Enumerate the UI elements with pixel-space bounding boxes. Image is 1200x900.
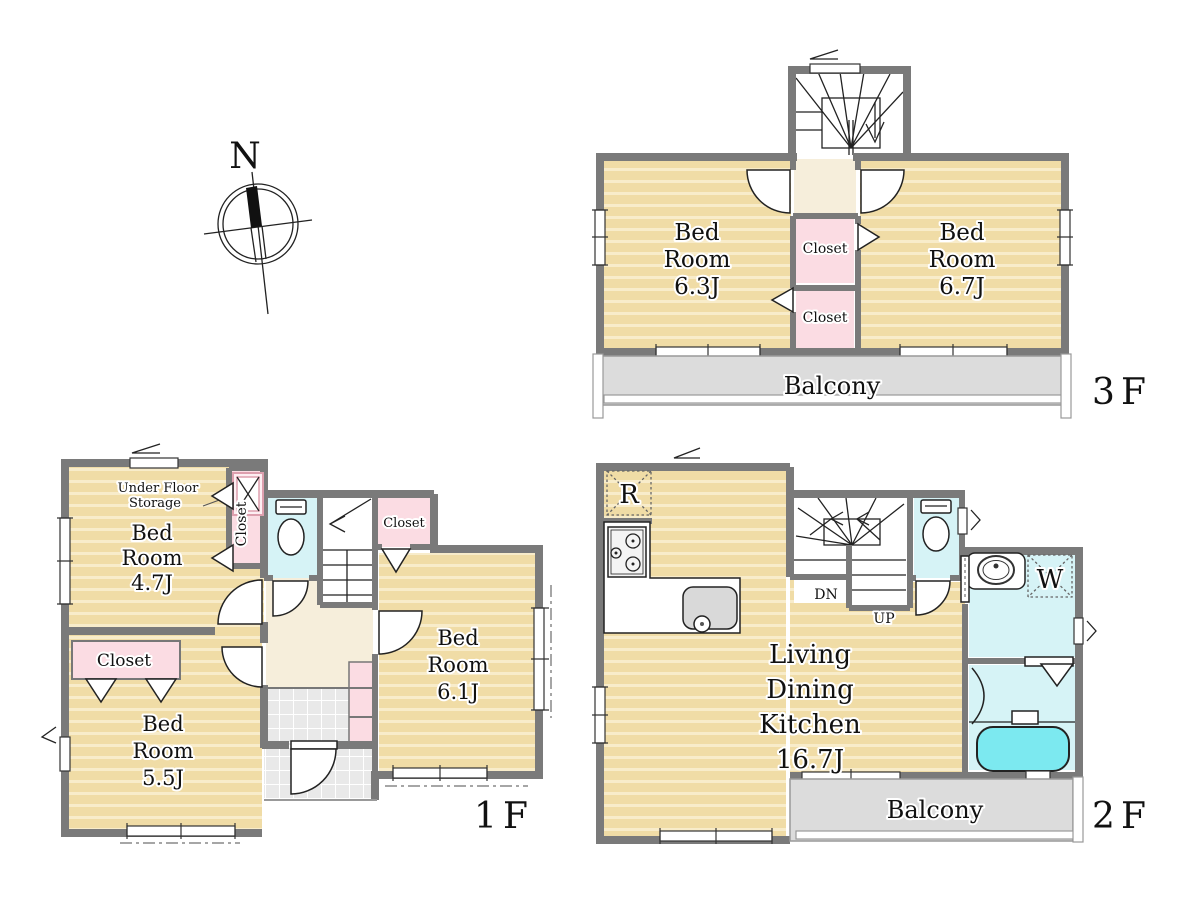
room-label: Kitchen	[759, 710, 861, 740]
tub-shelf	[1012, 711, 1038, 724]
floor-plan-drawing: N	[0, 0, 1200, 900]
refrigerator-marker: R	[619, 480, 640, 510]
floor-label-1f: 1F	[474, 796, 534, 837]
floor-label-3f: 3F	[1092, 372, 1152, 413]
window	[958, 508, 967, 534]
room-label: Bed	[142, 712, 183, 736]
balcony-label: Balcony	[784, 372, 881, 400]
washer-marker: W	[1037, 565, 1064, 595]
front-door-leaf	[291, 741, 337, 749]
room-size-label: 16.7J	[776, 745, 844, 775]
closet-label: Closet	[97, 651, 151, 671]
shoe-cabinet	[349, 662, 374, 743]
room-label: Living	[769, 640, 851, 670]
floor-label-2f: 2F	[1092, 796, 1152, 837]
compass-axes	[204, 172, 312, 314]
compass-needle	[246, 186, 262, 228]
vent-icon	[132, 444, 160, 453]
room-size-label: 6.1J	[437, 680, 479, 704]
room-size-label: 6.3J	[674, 274, 720, 300]
bathtub-icon	[977, 727, 1069, 771]
room-size-label: 6.7J	[939, 274, 985, 300]
vent-icon	[1087, 621, 1096, 641]
room-label: Dining	[766, 675, 854, 705]
kitchen-sink-icon	[683, 587, 737, 632]
vent-icon	[42, 727, 56, 743]
window	[1074, 618, 1083, 644]
under-floor-label: Under Floor	[118, 481, 200, 496]
vent-icon	[971, 510, 980, 530]
room-size-label: 5.5J	[142, 766, 184, 790]
closet-label: Closet	[383, 516, 425, 531]
vent-icon	[810, 50, 838, 59]
room-label: Bed	[939, 220, 985, 246]
room-label: Bed	[437, 626, 478, 650]
stairs-up-label: UP	[873, 611, 894, 627]
room-label: Room	[427, 653, 488, 677]
compass: N	[204, 136, 312, 314]
closet-label: Closet	[803, 310, 848, 326]
stove-icon	[608, 527, 646, 577]
closet-label: Closet	[803, 241, 848, 257]
toilet-icon	[921, 500, 951, 551]
stairs-down-label: DN	[814, 587, 837, 603]
room-label: Bed	[131, 521, 172, 545]
room-label: Room	[132, 739, 193, 763]
floor-plan-page: N	[0, 0, 1200, 900]
room-label: Room	[664, 247, 731, 273]
room-label: Room	[929, 247, 996, 273]
room-label: Bed	[674, 220, 720, 246]
balcony-label: Balcony	[887, 796, 984, 824]
floor-3f: Bed Room 6.3J Bed Room 6.7J Closet Close…	[592, 50, 1152, 418]
north-label: N	[229, 136, 267, 177]
room-label: Room	[121, 546, 182, 570]
floor-1f: Under Floor Storage Bed Room 4.7J Closet…	[42, 444, 551, 843]
room-ldk-floor	[849, 608, 910, 777]
under-floor-label: Storage	[129, 496, 181, 511]
entrance-tile	[266, 688, 349, 745]
room-size-label: 4.7J	[131, 571, 173, 595]
hall-3f	[794, 159, 856, 216]
closet-label: Closet	[234, 501, 250, 546]
floor-2f: R W DN UP Living Dining Kitchen 16.7J Ba…	[592, 448, 1152, 844]
toilet-icon	[276, 500, 306, 555]
vent-icon	[674, 448, 700, 458]
